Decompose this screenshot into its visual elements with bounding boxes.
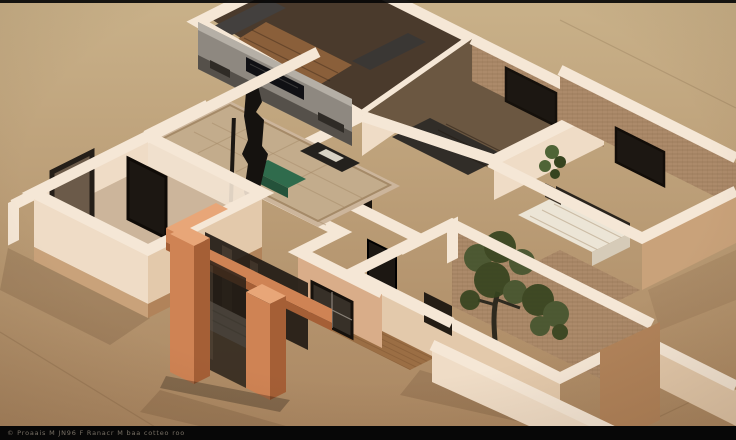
isometric-floorplan-render <box>0 0 736 440</box>
screenshot-root: © Proaais M JN96 F Ranacr M baa cotteo r… <box>0 0 736 440</box>
watermark-text: © Proaais M JN96 F Ranacr M baa cotteo r… <box>0 429 185 437</box>
letterbox-top <box>0 0 736 3</box>
vignette <box>0 0 736 440</box>
letterbox-bottom: © Proaais M JN96 F Ranacr M baa cotteo r… <box>0 426 736 440</box>
